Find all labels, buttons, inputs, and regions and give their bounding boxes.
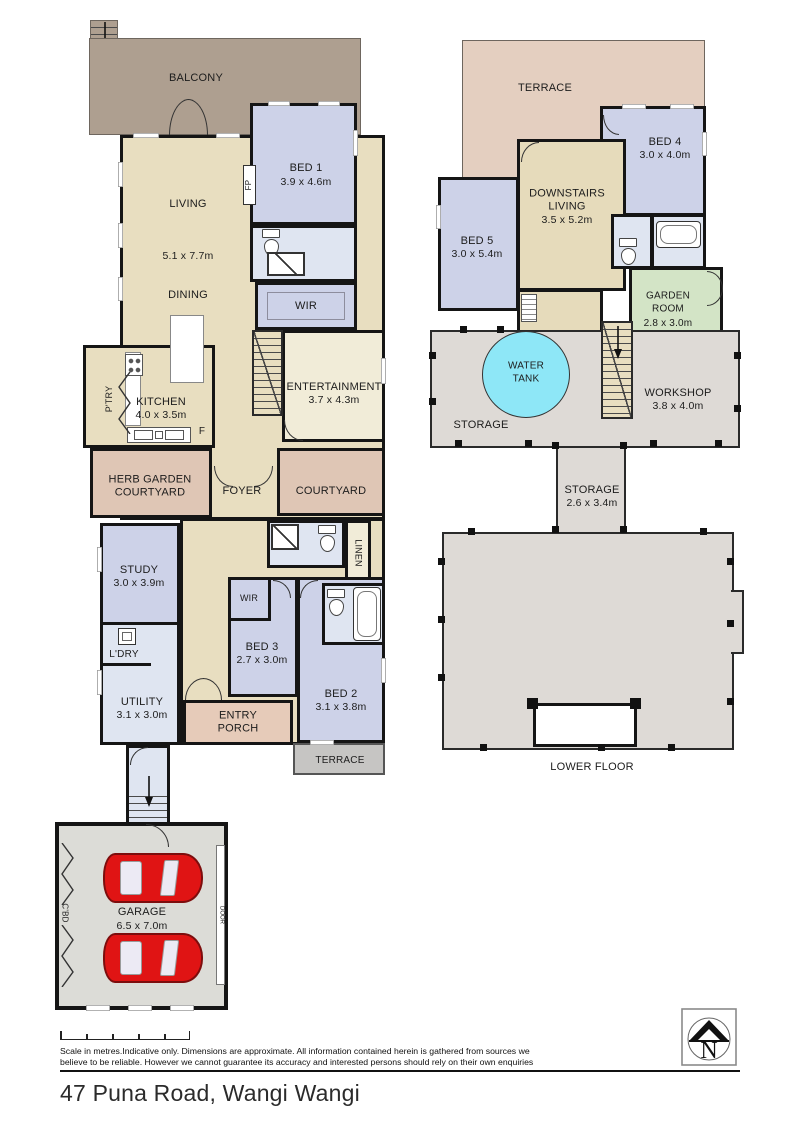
- laundry-wall: [103, 663, 151, 666]
- downstairs-living-dims: 3.5 x 5.2m: [541, 214, 592, 227]
- bed4-label: BED 4: [649, 136, 682, 149]
- lower-stairs: [601, 321, 633, 419]
- north-letter: N: [700, 1038, 717, 1064]
- front-terrace-label: TERRACE: [315, 755, 364, 768]
- utility-label: UTILITY: [121, 696, 163, 709]
- wir2-label: WIR: [240, 592, 258, 605]
- bed3-dims: 2.7 x 3.0m: [236, 654, 287, 667]
- scale-bar-tick: [164, 1034, 166, 1040]
- balcony-label: BALCONY: [169, 72, 223, 85]
- bed5-dims: 3.0 x 5.4m: [451, 248, 502, 261]
- north-arrow-icon: N: [681, 1008, 737, 1066]
- wall-pier: [525, 440, 532, 447]
- garage-door-label: DOOR: [215, 906, 228, 924]
- wall-pier: [460, 326, 467, 333]
- workshop-dims: 3.8 x 4.0m: [652, 400, 703, 413]
- kitchenette-icon: [521, 294, 537, 322]
- courtyard-room: [277, 448, 385, 516]
- laundry-label: L'DRY: [109, 649, 138, 662]
- laundry-utility-room: [100, 622, 180, 745]
- wall-pier: [734, 352, 741, 359]
- stair-diagonal: [254, 332, 281, 414]
- wall-pier: [727, 558, 734, 565]
- wall-pier: [429, 398, 436, 405]
- wall-pier: [715, 440, 722, 447]
- window: [86, 1005, 110, 1011]
- scale-bar-line: [60, 1039, 190, 1041]
- scale-bar-tick: [138, 1034, 140, 1040]
- stair-direction-arrow: [143, 776, 155, 808]
- utility-dims: 3.1 x 3.0m: [116, 709, 167, 722]
- storage2-label: STORAGE: [565, 484, 620, 497]
- bed2-label: BED 2: [325, 688, 358, 701]
- window: [381, 358, 386, 384]
- bed1-label: BED 1: [290, 162, 323, 175]
- wall-pier: [727, 620, 734, 627]
- wir1-label: WIR: [295, 300, 317, 313]
- workshop-label: WORKSHOP: [645, 387, 712, 400]
- bed1-dims: 3.9 x 4.6m: [280, 176, 331, 189]
- kitchen-dims: 4.0 x 3.5m: [135, 409, 186, 422]
- wall-pier: [598, 744, 605, 751]
- car: [103, 853, 203, 903]
- fridge-label: F: [199, 426, 205, 439]
- bed5-label: BED 5: [461, 235, 494, 248]
- scale-bar-tick: [60, 1031, 62, 1040]
- window: [97, 670, 102, 695]
- window: [670, 104, 694, 109]
- window: [622, 104, 646, 109]
- dining-label: DINING: [168, 289, 208, 302]
- shower-icon: [271, 524, 299, 550]
- window: [133, 133, 159, 138]
- linen-label: LINEN: [352, 539, 365, 567]
- lower-terrace-label: TERRACE: [518, 82, 572, 95]
- lower-notch: [533, 703, 637, 747]
- cupboard-zigzag-icon: [60, 925, 75, 987]
- disclaimer-line2: believe to be reliable. However we canno…: [60, 1057, 533, 1068]
- window: [97, 547, 102, 572]
- wall-pier: [734, 405, 741, 412]
- study-label: STUDY: [120, 564, 158, 577]
- wall-pier: [700, 528, 707, 535]
- cupboard-label: C'BD: [58, 903, 71, 922]
- window: [128, 1005, 152, 1011]
- car: [103, 933, 203, 983]
- wall-pier: [438, 674, 445, 681]
- garden-room-label: GARDEN ROOM: [646, 291, 690, 316]
- shower-icon: [267, 252, 305, 276]
- stair-direction-arrow: [612, 326, 624, 360]
- address-title: 47 Puna Road, Wangi Wangi: [60, 1080, 360, 1107]
- wall-pier: [480, 744, 487, 751]
- internal-stairs: [252, 330, 283, 416]
- window: [118, 223, 123, 248]
- bed2-dims: 3.1 x 3.8m: [315, 701, 366, 714]
- wall-pier: [429, 352, 436, 359]
- floorplan-canvas: BALCONY: [0, 0, 800, 1131]
- lower-floor-label: LOWER FLOOR: [550, 761, 634, 774]
- wall-pier: [497, 326, 504, 333]
- water-tank-label: WATER TANK: [508, 361, 544, 386]
- window: [702, 132, 707, 156]
- wall-pier: [620, 442, 627, 449]
- entry-porch-label: ENTRY PORCH: [218, 710, 259, 735]
- cupboard-zigzag-icon: [60, 843, 75, 905]
- wall-pier: [668, 744, 675, 751]
- wall-pier: [438, 558, 445, 565]
- wall-pier: [552, 442, 559, 449]
- scale-bar-tick: [112, 1034, 114, 1040]
- disclaimer-line1: Scale in metres.Indicative only. Dimensi…: [60, 1046, 530, 1057]
- toilet-icon: [619, 238, 637, 263]
- window: [353, 130, 358, 156]
- entertainment-label: ENTERTAINMENT: [286, 381, 381, 394]
- garage-dims: 6.5 x 7.0m: [116, 920, 167, 933]
- wall-pier: [650, 440, 657, 447]
- window: [216, 133, 240, 138]
- window: [381, 658, 386, 683]
- storage1-label: STORAGE: [454, 419, 509, 432]
- bathtub-icon: [656, 221, 701, 248]
- toilet-icon: [327, 589, 345, 614]
- window: [118, 277, 123, 301]
- wall-pier: [438, 616, 445, 623]
- laundry-sink-icon: [118, 628, 136, 645]
- toilet-icon: [318, 525, 336, 550]
- kitchen-label: KITCHEN: [136, 396, 186, 409]
- living-label: LIVING: [169, 198, 206, 211]
- wall-pier: [455, 440, 462, 447]
- fireplace-label: FP: [243, 180, 256, 191]
- window: [318, 101, 340, 106]
- wall-pier: [727, 698, 734, 705]
- pantry-shelf-zigzag-icon: [116, 372, 134, 434]
- living-dims: 5.1 x 7.7m: [162, 250, 213, 263]
- herb-courtyard-label: HERB GARDEN COURTYARD: [109, 474, 192, 499]
- entertainment-dims: 3.7 x 4.3m: [308, 394, 359, 407]
- window: [268, 101, 290, 106]
- bed4-dims: 3.0 x 4.0m: [639, 149, 690, 162]
- study-dims: 3.0 x 3.9m: [113, 577, 164, 590]
- wall-pier: [552, 526, 559, 533]
- window: [310, 740, 334, 745]
- wall-pier: [527, 698, 538, 709]
- window: [436, 205, 441, 229]
- scale-bar-tick: [86, 1034, 88, 1040]
- kitchen-island: [170, 315, 204, 383]
- wall-pier: [630, 698, 641, 709]
- wall-pier: [468, 528, 475, 535]
- kitchen-sink-icon: [127, 427, 191, 443]
- scale-bar-tick: [189, 1031, 191, 1040]
- foyer-label: FOYER: [223, 485, 262, 498]
- scale-bar: [60, 1028, 190, 1040]
- pantry-label: P'TRY: [103, 386, 116, 413]
- toilet-icon: [262, 229, 280, 254]
- courtyard-label: COURTYARD: [296, 485, 366, 498]
- wall-pier: [620, 526, 627, 533]
- divider-line: [60, 1070, 740, 1072]
- window: [118, 162, 123, 187]
- storage2-dims: 2.6 x 3.4m: [566, 497, 617, 510]
- garage-label: GARAGE: [118, 906, 166, 919]
- window: [170, 1005, 194, 1011]
- garden-room-dims: 2.8 x 3.0m: [644, 318, 693, 331]
- bed3-label: BED 3: [246, 641, 279, 654]
- bathtub-icon: [353, 587, 381, 641]
- downstairs-living-label: DOWNSTAIRS LIVING: [529, 188, 605, 213]
